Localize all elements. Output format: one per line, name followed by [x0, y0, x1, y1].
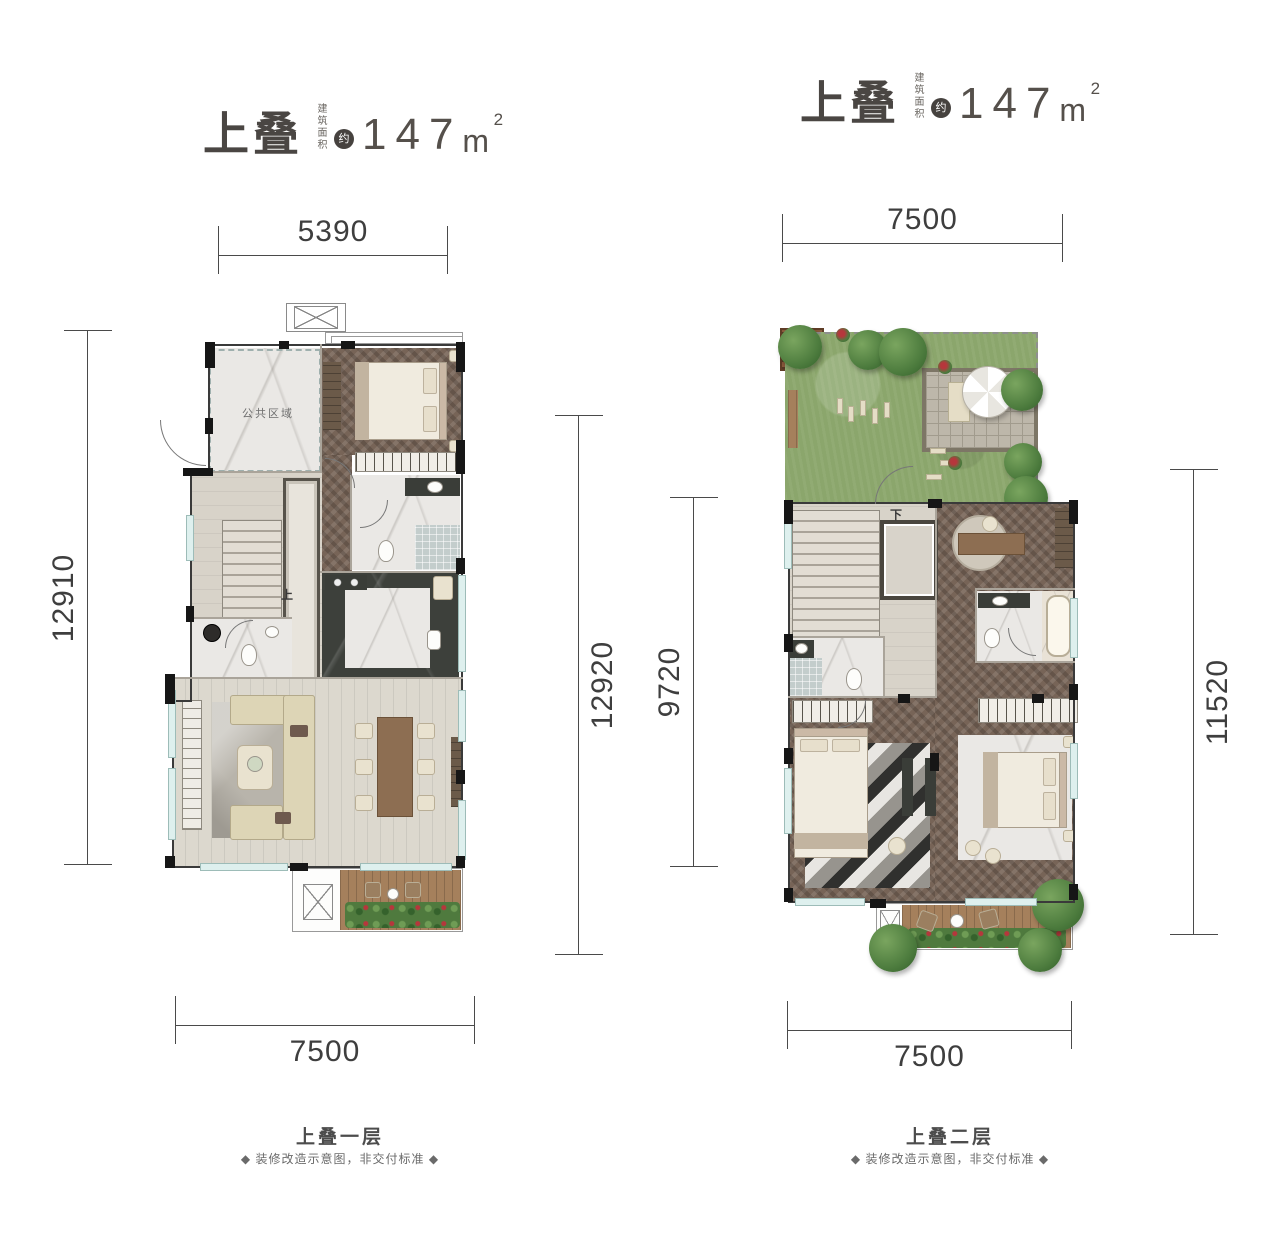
- wall-chunk: [279, 341, 289, 349]
- wall-chunk: [205, 342, 215, 368]
- bed-throw: [794, 833, 868, 849]
- wall-chunk: [205, 418, 213, 434]
- garden-bench: [788, 390, 798, 448]
- bathtub: [1046, 595, 1071, 657]
- desk-chair: [982, 516, 998, 532]
- staircase: [222, 520, 282, 618]
- pillow: [832, 739, 860, 752]
- tree: [869, 924, 917, 972]
- dining-chair: [417, 759, 435, 775]
- left-plan-note: ◆ 装修改造示意图，非交付标准 ◆: [241, 1150, 439, 1167]
- bed-headboard: [439, 362, 447, 440]
- stepping-stone: [884, 402, 890, 418]
- balcony-plants: [345, 902, 460, 928]
- kitchen-sink: [427, 630, 441, 650]
- wall-chunk: [165, 674, 175, 704]
- wall-chunk: [930, 753, 939, 771]
- partition: [975, 588, 977, 661]
- ac-platform: [294, 306, 338, 329]
- left-plan-caption: 上叠一层: [296, 1122, 384, 1149]
- window: [784, 523, 792, 569]
- wall-chunk: [183, 468, 213, 476]
- wall-chunk: [456, 440, 465, 474]
- dining-chair: [417, 723, 435, 739]
- wall-chunk: [456, 558, 465, 574]
- wall-chunk: [1032, 694, 1044, 703]
- kitchen-rug: [345, 588, 430, 668]
- partition: [935, 504, 937, 698]
- sink-basin: [992, 596, 1008, 606]
- toilet: [378, 540, 394, 562]
- dim-left-east: 12920: [578, 415, 579, 955]
- partition: [788, 636, 885, 638]
- wall-chunk: [186, 606, 194, 622]
- partition: [190, 617, 292, 619]
- partition: [350, 475, 352, 570]
- window: [784, 768, 792, 834]
- pillow: [423, 406, 437, 432]
- stove: [325, 575, 367, 590]
- dining-chair: [417, 795, 435, 811]
- sink-basin: [427, 481, 443, 493]
- tree: [1018, 928, 1062, 972]
- lounge-chair: [985, 848, 1001, 864]
- elevator-shaft: [880, 520, 938, 600]
- window: [458, 800, 466, 860]
- toilet: [846, 668, 862, 690]
- dim-right-bottom: 7500: [787, 1030, 1072, 1031]
- right-floorplan: 下: [780, 328, 1085, 958]
- ac-unit: [303, 884, 333, 920]
- window: [168, 768, 176, 840]
- bookshelf: [182, 700, 202, 830]
- window: [795, 898, 865, 906]
- left-floorplan: 公共区域 上: [165, 300, 480, 940]
- shower: [788, 658, 822, 696]
- dining-chair: [355, 795, 373, 811]
- dim-right-west: 9720: [693, 497, 694, 867]
- wall-chunk: [870, 899, 886, 908]
- wall-chunk: [784, 888, 793, 902]
- patio-chair: [365, 882, 381, 898]
- wall-chunk: [784, 634, 793, 652]
- right-title-main: 上叠: [800, 80, 900, 126]
- patio-chair: [405, 882, 421, 898]
- wall-chunk: [341, 341, 355, 349]
- room-label-public-area: 公共区域: [223, 405, 313, 421]
- staircase: [792, 510, 880, 648]
- wall-chunk: [165, 856, 175, 868]
- flower-bush: [938, 360, 952, 374]
- fridge: [433, 576, 453, 600]
- entry-door-arc: [160, 420, 206, 466]
- left-title-unit: m2: [462, 125, 503, 157]
- window: [1070, 598, 1078, 658]
- wall-chunk: [1069, 500, 1078, 524]
- flower-bush: [948, 456, 962, 470]
- dining-chair: [355, 723, 373, 739]
- partition: [883, 636, 885, 698]
- right-plan-note: ◆ 装修改造示意图，非交付标准 ◆: [851, 1150, 1049, 1167]
- tree: [1001, 369, 1043, 411]
- wall: [190, 472, 192, 702]
- wall-chunk: [290, 863, 308, 871]
- right-title-area-label: 建筑面积: [910, 72, 925, 122]
- shower: [415, 525, 460, 570]
- window: [965, 898, 1037, 906]
- sink-basin: [795, 643, 808, 654]
- wall-chunk: [1069, 684, 1078, 700]
- wall: [208, 344, 463, 346]
- table-plant: [247, 756, 263, 772]
- stepping-stone: [926, 474, 942, 480]
- stepping-stone: [837, 398, 843, 414]
- bed-throw: [355, 362, 369, 440]
- patio-table: [950, 914, 964, 928]
- floorplan-sheet: 上叠 建筑面积 约 147 m2 5390 12910 12920 7500: [0, 0, 1280, 1241]
- stepping-stone: [872, 408, 878, 424]
- window: [458, 575, 466, 672]
- dining-chair: [355, 759, 373, 775]
- sofa-cushion: [275, 812, 291, 824]
- wall-chunk: [928, 499, 942, 508]
- partition: [172, 677, 463, 679]
- lounge-chair: [965, 840, 981, 856]
- right-plan-title: 上叠 建筑面积 约 147 m2: [800, 72, 1100, 126]
- stepping-stone: [860, 400, 866, 416]
- window: [200, 863, 288, 871]
- wall-chunk: [784, 748, 793, 764]
- patio-table: [387, 888, 399, 900]
- bed-headboard: [1059, 752, 1067, 828]
- pillow: [1043, 792, 1056, 820]
- wall-chunk: [456, 856, 465, 868]
- dim-right-top: 7500: [782, 243, 1063, 244]
- dining-table: [377, 717, 413, 817]
- pillow: [1043, 758, 1056, 786]
- closet: [978, 698, 1078, 723]
- partition: [975, 588, 1075, 590]
- wall-chunk: [898, 694, 910, 703]
- bed-throw: [983, 752, 998, 828]
- partition: [788, 696, 935, 698]
- left-title-area-label: 建筑面积: [313, 103, 328, 153]
- partition: [320, 344, 322, 473]
- partition: [208, 471, 322, 473]
- right-plan-caption: 上叠二层: [906, 1122, 994, 1149]
- left-title-main: 上叠: [203, 111, 303, 157]
- right-title-area-value: 147: [959, 82, 1059, 126]
- armchair: [888, 837, 906, 855]
- toilet: [984, 628, 1000, 648]
- stair-direction-label: 下: [890, 506, 902, 523]
- wall-chunk: [1069, 884, 1078, 900]
- partition: [320, 571, 463, 573]
- window: [1070, 743, 1078, 799]
- wall-chunk: [456, 342, 465, 372]
- sofa-cushion: [290, 725, 308, 737]
- window: [360, 863, 452, 871]
- window: [186, 515, 194, 561]
- bedroom-dresser: [323, 362, 341, 430]
- tv-panel: [902, 758, 913, 816]
- partition: [975, 661, 1075, 663]
- stepping-stone: [930, 448, 946, 454]
- flower-bush: [836, 328, 850, 342]
- desk: [958, 533, 1025, 555]
- tree: [778, 325, 822, 369]
- window: [458, 690, 466, 742]
- dim-left-top: 5390: [218, 255, 448, 256]
- sink-basin: [265, 626, 279, 638]
- approx-badge: 约: [931, 98, 951, 118]
- wardrobe: [355, 452, 460, 472]
- wall: [1073, 502, 1075, 903]
- bed-headboard: [794, 728, 868, 737]
- wall-chunk: [784, 500, 793, 524]
- stair-direction-label: 上: [281, 586, 293, 603]
- pillow: [800, 739, 828, 752]
- approx-badge: 约: [334, 129, 354, 149]
- dim-left-west: 12910: [87, 330, 88, 865]
- stepping-stone: [848, 406, 854, 422]
- pillow: [423, 368, 437, 394]
- left-title-area-value: 147: [362, 113, 462, 157]
- wall-chunk: [456, 770, 465, 784]
- right-title-unit: m2: [1059, 94, 1100, 126]
- left-plan-title: 上叠 建筑面积 约 147 m2: [203, 103, 503, 157]
- dim-left-bottom: 7500: [175, 1025, 475, 1026]
- tree: [879, 328, 927, 376]
- dim-right-east: 11520: [1193, 469, 1194, 935]
- washing-machine: [203, 624, 221, 642]
